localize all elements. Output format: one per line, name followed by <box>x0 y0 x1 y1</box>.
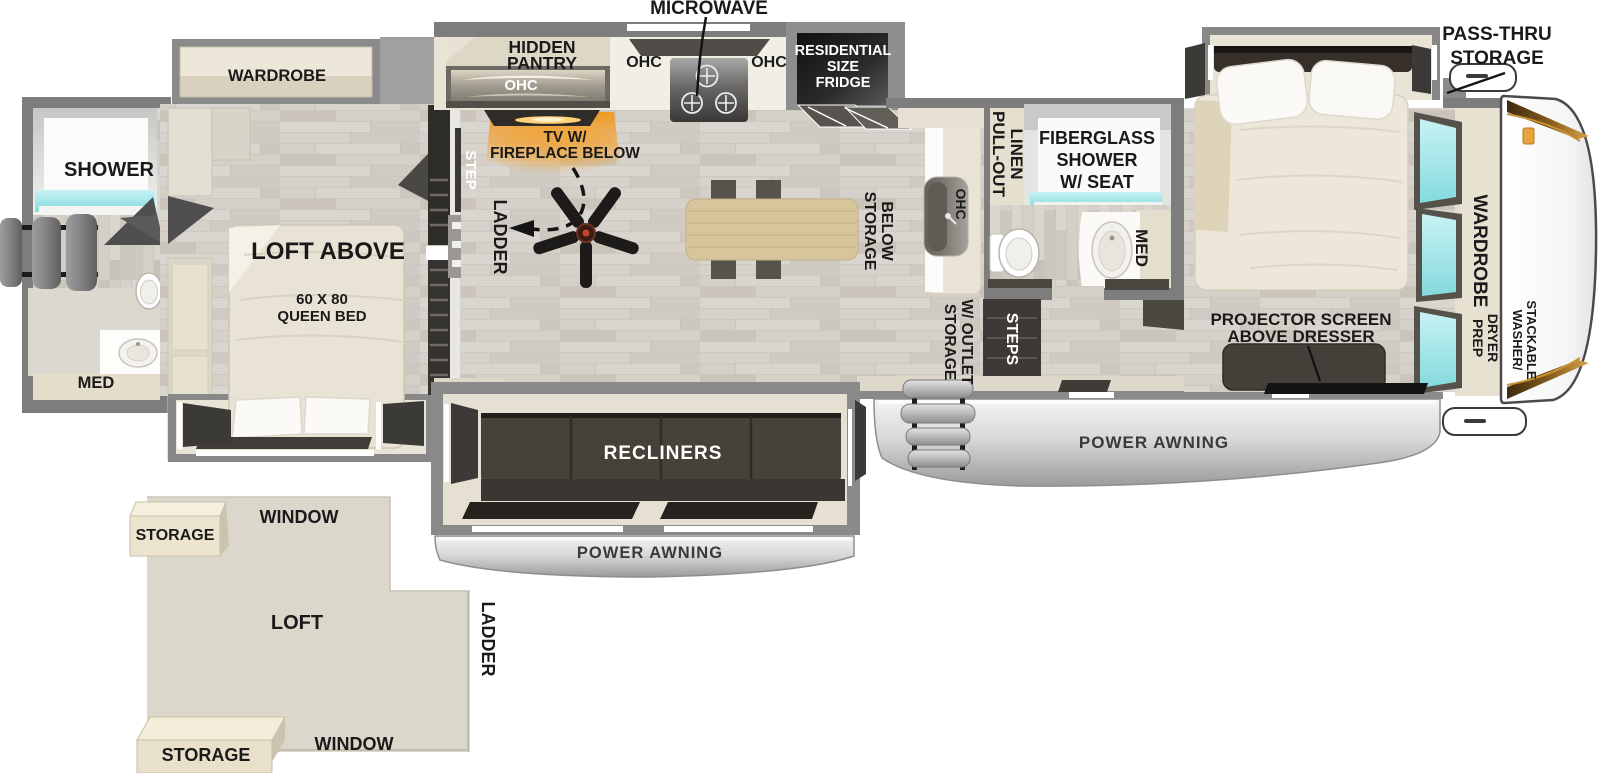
svg-text:WARDROBE: WARDROBE <box>1469 195 1490 308</box>
svg-text:MED: MED <box>1132 229 1151 267</box>
svg-text:WINDOW: WINDOW <box>315 734 394 754</box>
svg-text:FRIDGE: FRIDGE <box>816 75 871 91</box>
svg-text:STEPS: STEPS <box>1003 313 1020 366</box>
svg-text:SHOWER: SHOWER <box>1057 150 1138 170</box>
svg-text:RESIDENTIAL: RESIDENTIAL <box>795 43 892 59</box>
svg-text:ABOVE DRESSER: ABOVE DRESSER <box>1227 327 1374 346</box>
svg-text:POWER AWNING: POWER AWNING <box>1079 433 1229 452</box>
svg-text:STORAGE: STORAGE <box>162 745 251 765</box>
svg-text:WARDROBE: WARDROBE <box>228 67 326 85</box>
svg-text:LOFT: LOFT <box>271 612 323 634</box>
svg-text:STORAGE: STORAGE <box>1450 48 1544 69</box>
svg-text:PASS-THRU: PASS-THRU <box>1442 24 1551 45</box>
svg-text:SHOWER: SHOWER <box>64 159 155 181</box>
svg-text:SIZE: SIZE <box>827 59 860 75</box>
svg-text:POWER AWNING: POWER AWNING <box>577 544 723 562</box>
svg-text:TV W/: TV W/ <box>543 129 587 146</box>
svg-text:OHC: OHC <box>751 54 787 71</box>
svg-text:LOFT ABOVE: LOFT ABOVE <box>251 238 405 265</box>
svg-text:LADDER: LADDER <box>478 602 498 677</box>
svg-text:W/ OUTLETSTORAGE: W/ OUTLETSTORAGE <box>941 299 975 385</box>
svg-text:QUEEN BED: QUEEN BED <box>277 308 366 325</box>
svg-text:WINDOW: WINDOW <box>260 507 339 527</box>
svg-text:STORAGE: STORAGE <box>136 527 215 544</box>
svg-text:RECLINERS: RECLINERS <box>604 443 723 464</box>
svg-text:STACKABLEWASHER/: STACKABLEWASHER/ <box>1510 300 1539 380</box>
svg-text:OHC: OHC <box>626 54 662 71</box>
svg-text:STEP: STEP <box>462 150 479 189</box>
svg-text:OHC: OHC <box>504 77 538 94</box>
svg-text:FIBERGLASS: FIBERGLASS <box>1039 128 1155 148</box>
svg-text:60 X 80: 60 X 80 <box>296 291 348 308</box>
svg-text:LADDER: LADDER <box>490 200 510 275</box>
svg-text:FIREPLACE BELOW: FIREPLACE BELOW <box>490 145 640 162</box>
svg-text:PANTRY: PANTRY <box>507 53 577 73</box>
svg-text:DRYERPREP: DRYERPREP <box>1470 314 1501 363</box>
svg-text:MICROWAVE: MICROWAVE <box>650 0 768 19</box>
svg-text:BELOWSTORAGE: BELOWSTORAGE <box>861 192 895 271</box>
svg-text:OHC: OHC <box>953 188 969 219</box>
svg-text:MED: MED <box>78 374 115 392</box>
svg-text:W/ SEAT: W/ SEAT <box>1060 172 1134 192</box>
